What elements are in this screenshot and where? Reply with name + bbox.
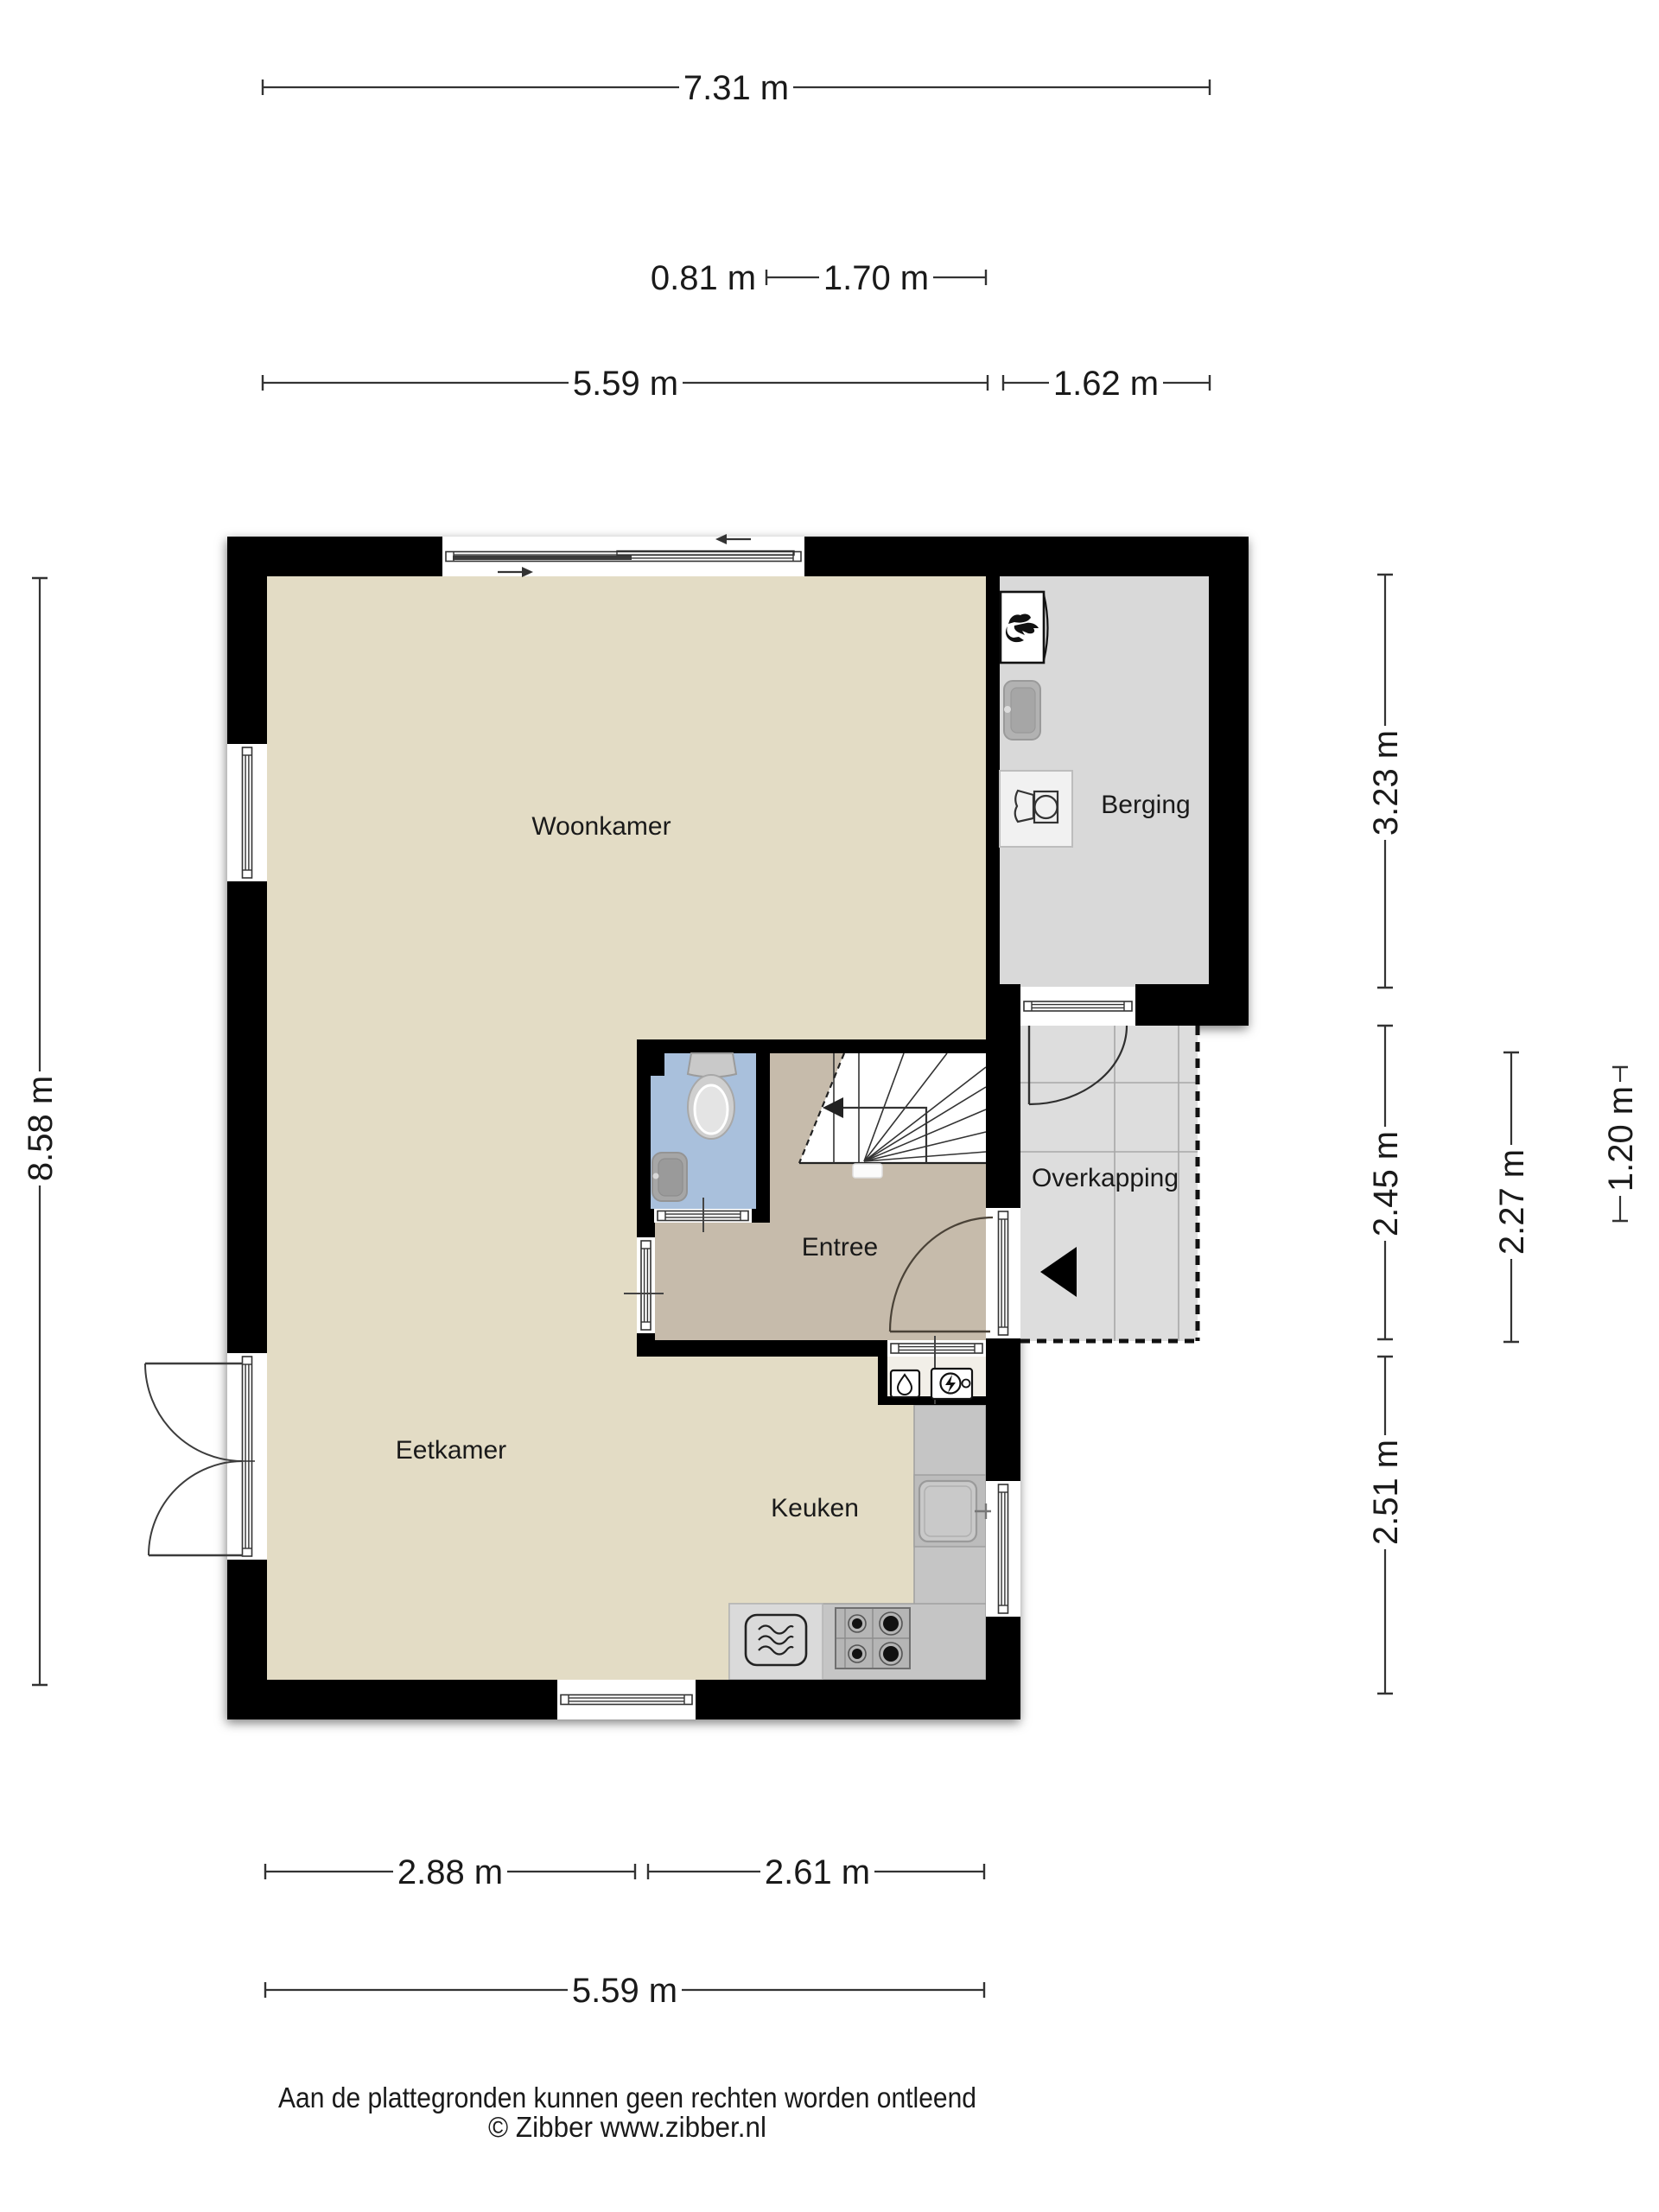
svg-text:5.59 m: 5.59 m (572, 1972, 677, 2010)
svg-text:2.61 m: 2.61 m (765, 1853, 870, 1891)
svg-text:7.31 m: 7.31 m (683, 69, 789, 107)
svg-text:Eetkamer: Eetkamer (396, 1436, 506, 1465)
svg-text:0.81 m: 0.81 m (651, 259, 756, 297)
svg-text:2.45 m: 2.45 m (1367, 1131, 1405, 1236)
svg-text:Berging: Berging (1101, 791, 1190, 819)
svg-text:Aan de plattegronden kunnen ge: Aan de plattegronden kunnen geen rechten… (278, 2082, 976, 2113)
svg-text:© Zibber www.zibber.nl: © Zibber www.zibber.nl (488, 2111, 766, 2143)
svg-text:1.20 m: 1.20 m (1602, 1086, 1640, 1192)
svg-text:Entree: Entree (802, 1233, 878, 1262)
svg-text:5.59 m: 5.59 m (573, 365, 678, 403)
svg-text:2.51 m: 2.51 m (1367, 1440, 1405, 1545)
svg-text:1.62 m: 1.62 m (1053, 365, 1159, 403)
svg-text:2.88 m: 2.88 m (397, 1853, 503, 1891)
svg-text:8.58 m: 8.58 m (22, 1076, 60, 1181)
svg-text:Keuken: Keuken (771, 1494, 859, 1522)
svg-text:1.70 m: 1.70 m (823, 259, 929, 297)
svg-text:Overkapping: Overkapping (1032, 1164, 1179, 1192)
svg-text:3.23 m: 3.23 m (1367, 730, 1405, 836)
svg-text:2.27 m: 2.27 m (1493, 1149, 1531, 1255)
svg-text:Woonkamer: Woonkamer (531, 812, 671, 841)
